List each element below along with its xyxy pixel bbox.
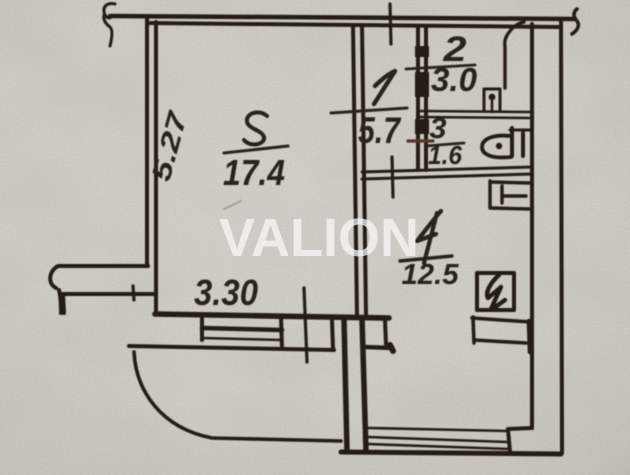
svg-text:VALION: VALION <box>219 208 419 268</box>
svg-text:5.7: 5.7 <box>358 110 402 151</box>
svg-text:17.4: 17.4 <box>223 152 285 193</box>
svg-text:3.30: 3.30 <box>194 272 258 313</box>
svg-text:1.6: 1.6 <box>428 140 462 170</box>
svg-text:3.0: 3.0 <box>431 61 478 98</box>
